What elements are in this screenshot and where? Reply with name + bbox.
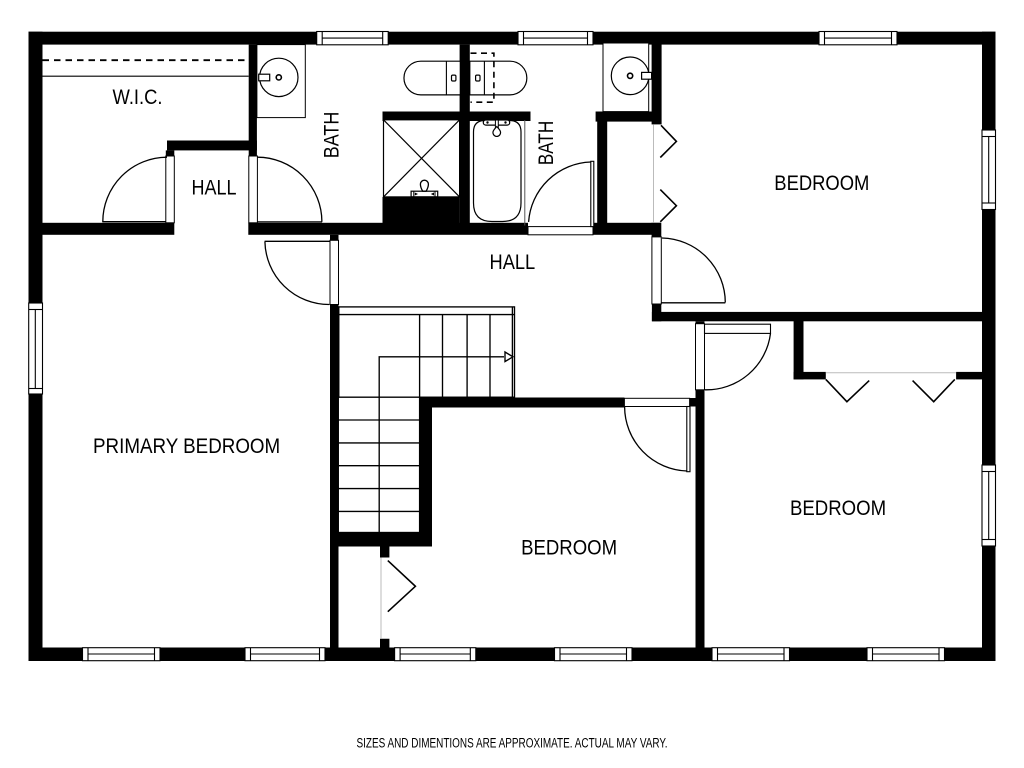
svg-text:BEDROOM: BEDROOM <box>521 536 617 559</box>
svg-text:BEDROOM: BEDROOM <box>790 497 886 520</box>
svg-text:SIZES AND DIMENTIONS ARE APPRO: SIZES AND DIMENTIONS ARE APPROXIMATE. AC… <box>357 735 668 751</box>
svg-text:W.I.C.: W.I.C. <box>113 86 163 109</box>
svg-text:HALL: HALL <box>490 251 536 274</box>
svg-text:BATH: BATH <box>321 112 344 159</box>
svg-text:HALL: HALL <box>192 176 237 199</box>
svg-text:PRIMARY BEDROOM: PRIMARY BEDROOM <box>93 435 280 458</box>
svg-text:BEDROOM: BEDROOM <box>774 172 869 195</box>
svg-text:BATH: BATH <box>535 121 558 165</box>
